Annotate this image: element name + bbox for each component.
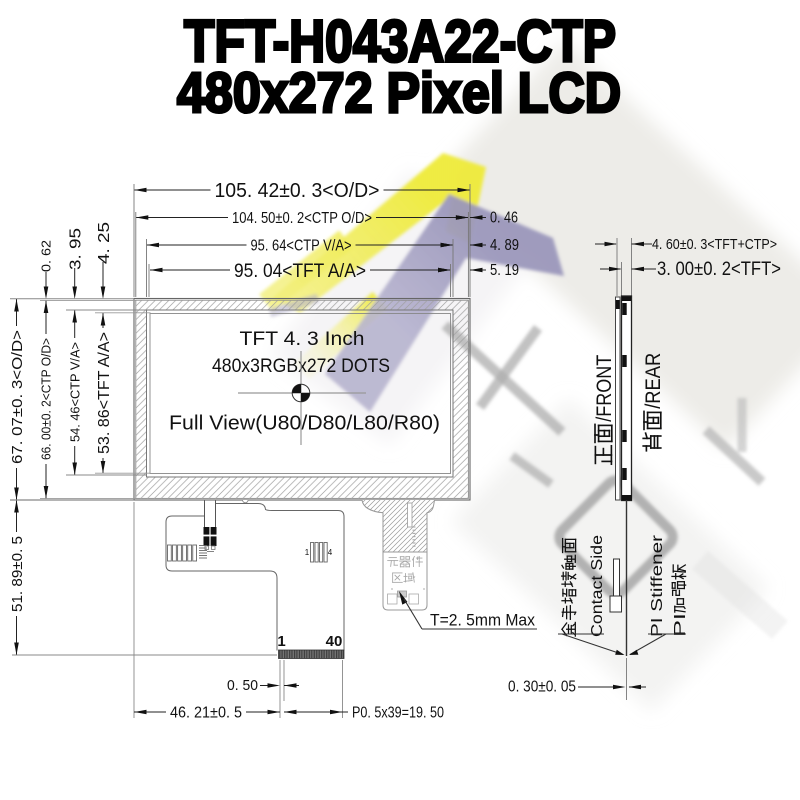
- svg-text:5. 19: 5. 19: [490, 262, 519, 279]
- svg-text:4: 4: [328, 548, 333, 557]
- svg-text:TFT 4. 3 Inch: TFT 4. 3 Inch: [240, 328, 365, 350]
- svg-text:PI Stiffener: PI Stiffener: [649, 534, 666, 637]
- svg-text:4. 89: 4. 89: [490, 237, 519, 254]
- svg-text:P0. 5x39=19. 50: P0. 5x39=19. 50: [352, 705, 444, 722]
- svg-text:1: 1: [277, 633, 285, 650]
- svg-text:3. 95: 3. 95: [68, 228, 85, 270]
- svg-text:Contact Side: Contact Side: [589, 535, 606, 637]
- svg-text:/FRONT: /FRONT: [593, 355, 616, 422]
- svg-text:1: 1: [305, 548, 310, 557]
- svg-text:4. 60±0. 3<TFT+CTP>: 4. 60±0. 3<TFT+CTP>: [652, 236, 777, 253]
- svg-text:67. 07±0. 3<O/D>: 67. 07±0. 3<O/D>: [9, 330, 26, 464]
- svg-text:0. 30±0. 05: 0. 30±0. 05: [508, 679, 576, 696]
- svg-text:4. 25: 4. 25: [96, 222, 113, 264]
- svg-text:0. 62: 0. 62: [39, 240, 54, 272]
- svg-text:3. 00±0. 2<TFT>: 3. 00±0. 2<TFT>: [657, 259, 781, 280]
- svg-text:46. 21±0. 5: 46. 21±0. 5: [170, 705, 242, 722]
- svg-text:0. 50: 0. 50: [227, 677, 258, 694]
- svg-text:105. 42±0. 3<O/D>: 105. 42±0. 3<O/D>: [215, 180, 380, 202]
- svg-text:T=2. 5mm Max: T=2. 5mm Max: [430, 611, 535, 630]
- svg-text:Full View(U80/D80/L80/R80): Full View(U80/D80/L80/R80): [169, 413, 440, 435]
- svg-text:0. 46: 0. 46: [490, 210, 518, 227]
- svg-text:95. 04<TFT A/A>: 95. 04<TFT A/A>: [234, 260, 366, 282]
- svg-text:54. 46<CTP V/A>: 54. 46<CTP V/A>: [67, 342, 82, 442]
- svg-text:51. 89±0. 5: 51. 89±0. 5: [9, 536, 26, 612]
- svg-text:480x272 Pixel LCD: 480x272 Pixel LCD: [177, 61, 621, 125]
- svg-text:PI: PI: [672, 613, 689, 637]
- svg-text:95. 64<CTP V/A>: 95. 64<CTP V/A>: [251, 238, 352, 255]
- svg-text:66. 00±0. 2<CTP O/D>: 66. 00±0. 2<CTP O/D>: [39, 338, 54, 460]
- svg-text:53. 86<TFT A/A>: 53. 86<TFT A/A>: [96, 332, 113, 454]
- svg-text:40: 40: [326, 633, 343, 650]
- svg-text:104. 50±0. 2<CTP O/D>: 104. 50±0. 2<CTP O/D>: [232, 210, 372, 227]
- svg-text:/REAR: /REAR: [642, 353, 665, 409]
